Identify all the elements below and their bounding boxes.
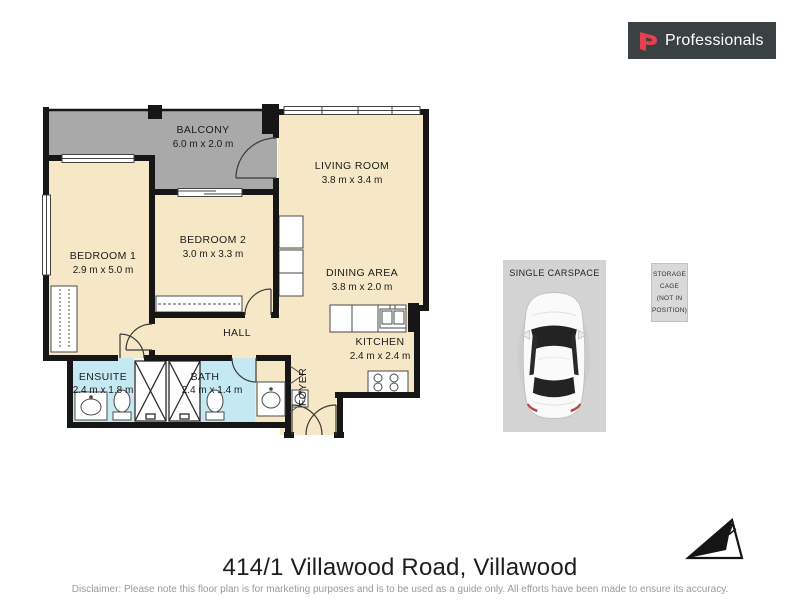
storage-line: POSITION) xyxy=(652,305,687,317)
floorplan-drawing: BALCONY 6.0 m x 2.0 m LIVING ROOM 3.8 m … xyxy=(40,90,430,440)
storage-line: CAGE xyxy=(652,281,687,293)
bedroom2-label: BEDROOM 2 xyxy=(180,234,247,246)
car-top-view xyxy=(510,284,598,426)
floorplan-page: Professionals xyxy=(0,0,800,600)
balcony-dims: 6.0 m x 2.0 m xyxy=(173,139,234,150)
storage-line: STORAGE xyxy=(652,269,687,281)
dining-label: DINING AREA xyxy=(326,267,398,279)
bedroom1-dims: 2.9 m x 5.0 m xyxy=(73,265,134,276)
carspace-label: SINGLE CARSPACE xyxy=(503,268,606,278)
property-address: 414/1 Villawood Road, Villawood xyxy=(0,554,800,582)
storage-cage-box: STORAGE CAGE (NOT IN POSITION) xyxy=(651,263,688,322)
ensuite-dims: 2.4 m x 1.8 m xyxy=(73,385,134,396)
disclaimer-text: Disclaimer: Please note this floor plan … xyxy=(0,584,800,595)
carspace-box: SINGLE CARSPACE xyxy=(503,260,606,432)
kitchen-label: KITCHEN xyxy=(356,336,405,348)
bedroom1-label: BEDROOM 1 xyxy=(70,250,137,262)
brand-logo: Professionals xyxy=(628,22,776,59)
bath-dims: 2.4 m x 1.4 m xyxy=(182,385,243,396)
living-dims: 3.8 m x 3.4 m xyxy=(322,175,383,186)
living-label: LIVING ROOM xyxy=(315,160,389,172)
foyer-label: FOYER xyxy=(297,368,309,406)
bath-label: BATH xyxy=(191,371,220,383)
ensuite-label: ENSUITE xyxy=(79,371,127,383)
professionals-p-icon xyxy=(637,29,659,53)
brand-name: Professionals xyxy=(665,32,764,50)
hall-label: HALL xyxy=(223,327,251,339)
bedroom2-dims: 3.0 m x 3.3 m xyxy=(183,249,244,260)
storage-line: (NOT IN xyxy=(652,293,687,305)
balcony-label: BALCONY xyxy=(177,124,230,136)
dining-dims: 3.8 m x 2.0 m xyxy=(332,282,393,293)
kitchen-dims: 2.4 m x 2.4 m xyxy=(350,351,411,362)
